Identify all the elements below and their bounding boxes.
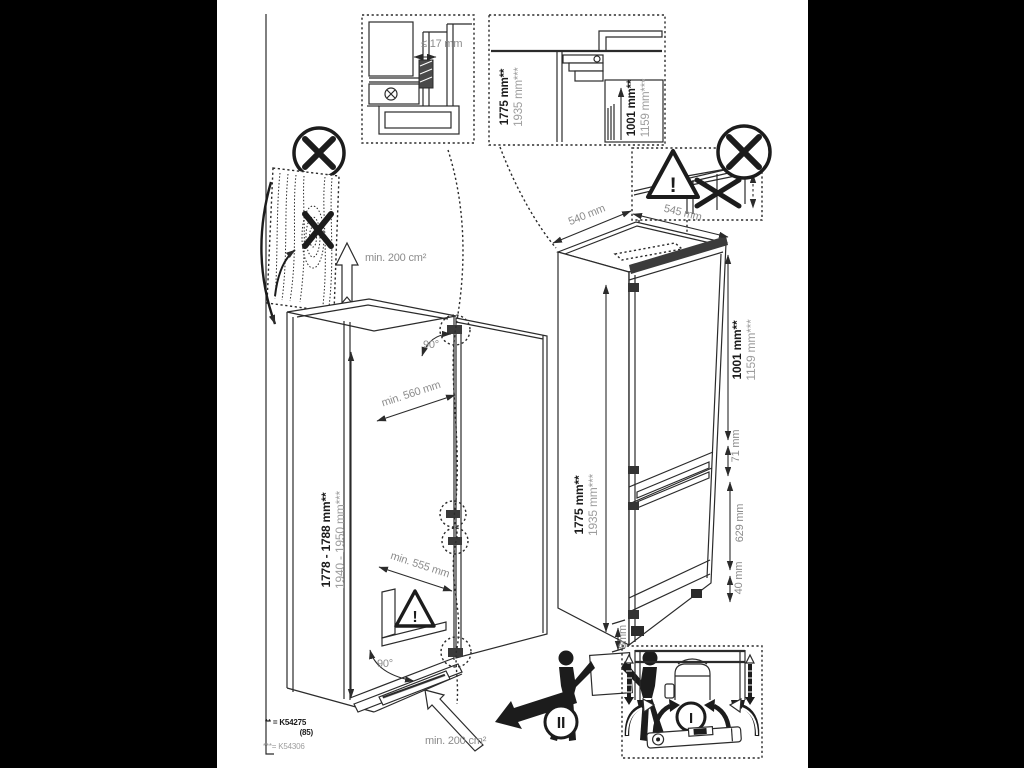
hinge-clearance-label: ≤ 17 mm: [421, 38, 462, 50]
level-step-label: I: [689, 710, 693, 727]
door-angle-bottom-label: 90°: [377, 658, 393, 670]
plinth-label: 40 mm: [733, 562, 745, 595]
foot: [631, 626, 644, 636]
footnotes: ** = K54275 (85) ***= K54306: [263, 718, 314, 751]
warning-exclamation: !: [412, 609, 417, 626]
step-circle: II: [545, 706, 577, 738]
step-circle: I: [677, 703, 705, 731]
hinge-hardware: [447, 325, 462, 334]
hinge-hardware: [628, 466, 639, 474]
appliance-side: [558, 252, 629, 645]
footnote-model-1: ** = K54275: [265, 718, 307, 727]
upper-height-label-bold: 1001 mm**: [626, 79, 638, 136]
page-edge-line: [266, 14, 274, 754]
appliance-height-label-bold: 1775 mm**: [572, 475, 586, 534]
hinge-hardware: [446, 510, 460, 518]
warning-triangle-icon: !: [396, 591, 434, 626]
levelling-box: I: [622, 646, 762, 758]
foot: [691, 589, 702, 598]
hinge-hardware: [628, 283, 639, 292]
warning-triangle-icon: !: [648, 151, 698, 197]
vent-area-top-label: min. 200 cm²: [365, 252, 427, 264]
upper-height-label-alt: 1159 mm***: [640, 78, 652, 137]
lower-door-label: 629 mm: [734, 504, 746, 543]
foot-screw-arrow: [745, 655, 755, 705]
niche-height-label-bold: 1775 mm**: [499, 68, 511, 125]
niche-depth-label: min. 560 mm: [380, 379, 442, 409]
appliance-height-label-alt: 1935 mm***: [586, 473, 600, 536]
niche-height-label-alt: 1940 - 1950 mm***: [333, 490, 347, 589]
appliance-front: [629, 243, 726, 645]
niche-width-label: min. 555 mm: [389, 550, 451, 580]
carry-step-label: II: [557, 715, 566, 732]
compressor: [665, 659, 710, 700]
upper-door-label-alt: 1159 mm***: [744, 319, 758, 381]
hinge-hardware: [448, 537, 462, 545]
footnote-model-1b: (85): [300, 728, 314, 737]
diagram-paper: ≤ 17 mm 1775 mm** 1935 mm*** 1001 mm** 1…: [217, 0, 808, 768]
cross-icon: [697, 180, 739, 206]
depth-label: 540 mm: [567, 202, 607, 228]
upper-door-label-bold: 1001 mm**: [730, 320, 744, 379]
hinge-hardware: [628, 502, 639, 510]
carried-box: [590, 653, 633, 696]
installation-diagram: ≤ 17 mm 1775 mm** 1935 mm*** 1001 mm** 1…: [217, 0, 808, 768]
vent-area-bottom-label: min. 200 cm²: [425, 735, 487, 747]
airflow-top: min. 200 cm²: [336, 243, 427, 303]
door-angle-top-label: 90°: [423, 339, 439, 351]
niche-height-label-alt: 1935 mm***: [513, 67, 525, 127]
niche-height-label-bold: 1778 - 1788 mm**: [319, 492, 333, 587]
airflow-arrow-icon: [336, 243, 358, 303]
door-gap-label: 71 mm: [730, 430, 742, 463]
warning-exclamation: !: [670, 174, 677, 197]
wood-grain-panel: [267, 168, 339, 312]
manual-page: { "colors": { "background": "#000000", "…: [0, 0, 1024, 768]
appliance: 540 mm 545 mm 1775 mm** 1935 mm*** 1001 …: [553, 202, 758, 652]
mounting-bracket: [599, 31, 662, 51]
top-section-box: 1775 mm** 1935 mm*** 1001 mm** 1159 mm**…: [489, 15, 665, 145]
cabinet-door: [456, 318, 547, 658]
footnote-model-2: ***= K54306: [263, 742, 305, 751]
prohibition-icon: [294, 128, 344, 178]
hinge-hardware: [628, 610, 639, 619]
leader-line: [500, 147, 556, 248]
prohibition-icon: [718, 126, 770, 178]
hinge-detail-box: ≤ 17 mm: [362, 15, 474, 143]
